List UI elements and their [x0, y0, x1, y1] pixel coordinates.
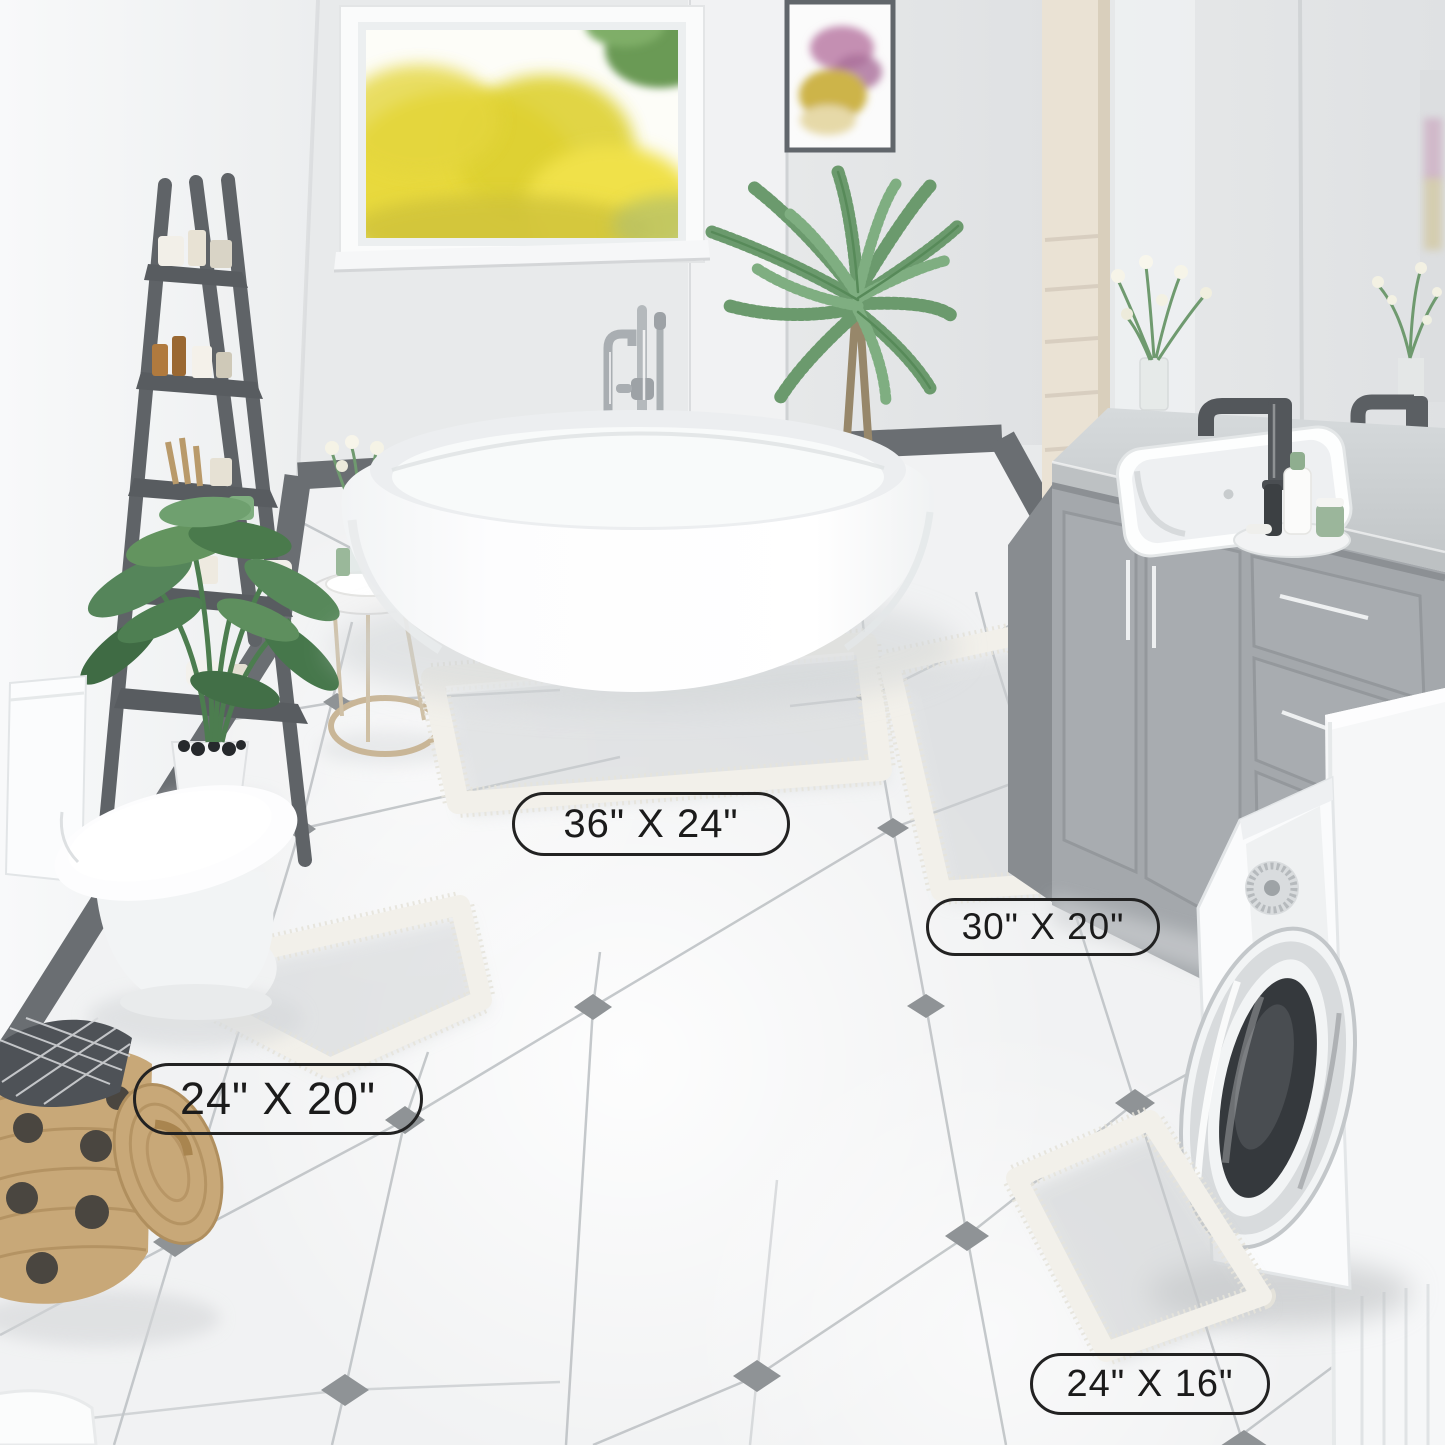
washer-knob [1245, 861, 1299, 915]
wall-art [787, 2, 893, 150]
bathroom-product-photo: 36" X 24" 30" X 20" 24" X 20" 24" X 16" [0, 0, 1445, 1445]
size-label-36x24: 36" X 24" [512, 792, 790, 856]
bathtub [330, 410, 960, 710]
vanity-side-panel [1008, 485, 1052, 902]
size-label-24x20: 24" X 20" [133, 1063, 423, 1135]
window [334, 3, 732, 280]
size-label-30x20: 30" X 20" [926, 898, 1160, 956]
size-label-24x16: 24" X 16" [1030, 1353, 1270, 1415]
basket-towel [0, 1018, 132, 1107]
scene-art [0, 0, 1445, 1445]
